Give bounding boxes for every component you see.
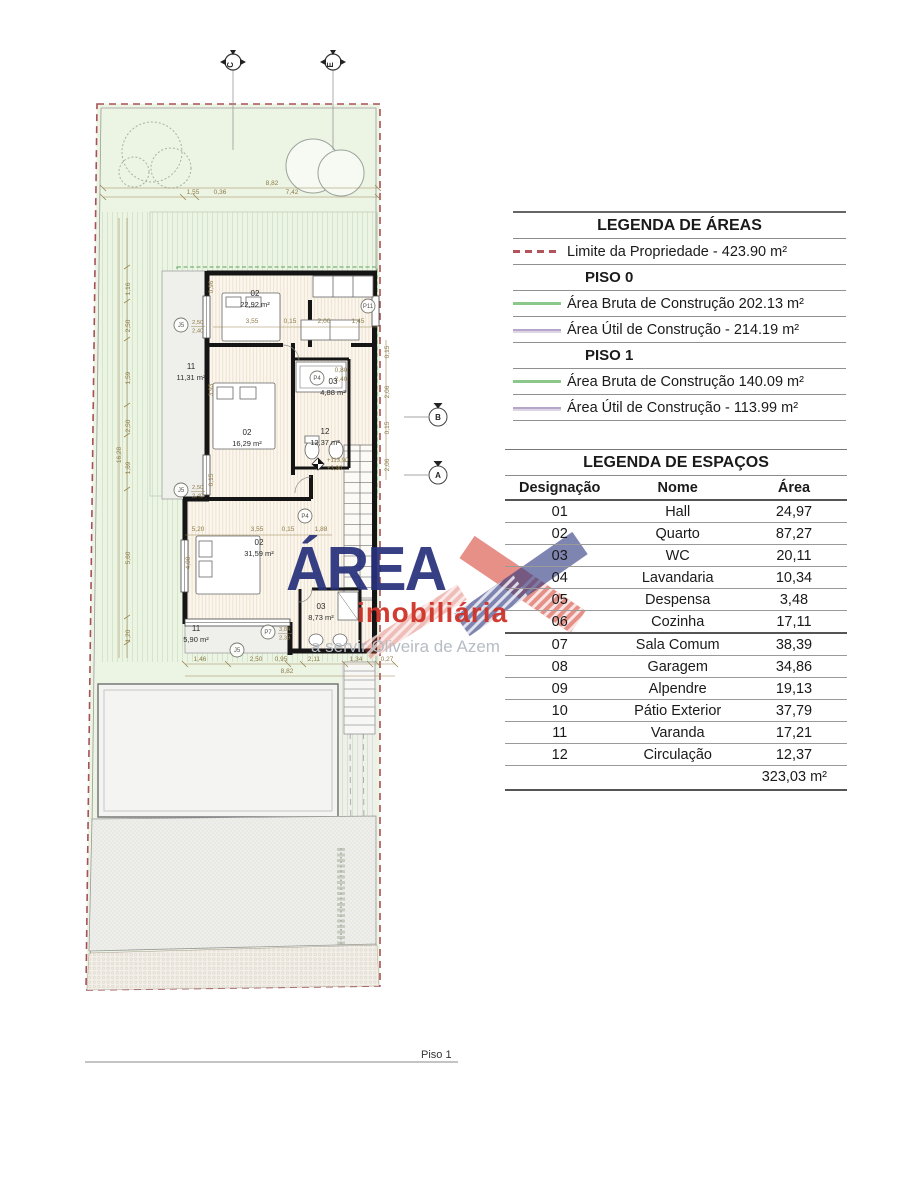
opening-marker-circle	[230, 643, 244, 657]
line-green-line-icon	[513, 302, 567, 305]
column-header-designacao: Designação	[505, 480, 614, 496]
opening-marker-circle	[174, 318, 188, 332]
legend-areas-label: Área Bruta de Construção 202.13 m²	[567, 296, 804, 312]
legend-areas-title: LEGENDA DE ÁREAS	[513, 211, 846, 239]
dim-label: 0,95	[275, 656, 288, 663]
opening-marker-label: P11	[363, 304, 374, 310]
dim-label: 2,50	[125, 319, 132, 332]
legend-spaces-row: 03WC20,11	[505, 545, 847, 567]
space-name: Despensa	[614, 592, 741, 608]
legend-spaces-row: 11Varanda17,21	[505, 722, 847, 744]
space-area: 12,37	[741, 747, 847, 763]
arrow-icon	[230, 50, 236, 55]
arrow-icon	[434, 403, 443, 409]
elevation-marker-circle	[429, 408, 447, 426]
space-code: 07	[505, 637, 614, 653]
space-name: Cozinha	[614, 614, 741, 630]
space-code: 02	[505, 526, 614, 542]
legend-areas-row: Área Bruta de Construção 202.13 m²	[513, 291, 846, 317]
dim-label: 1,59	[125, 371, 132, 384]
legend-areas-table: LEGENDA DE ÁREAS Limite da Propriedade -…	[513, 211, 846, 421]
dim-label: 1,88	[315, 526, 328, 533]
legend-spaces-row: 10Pátio Exterior37,79	[505, 700, 847, 722]
elevation-markers: BA	[404, 403, 447, 484]
legend-areas-label: PISO 0	[567, 269, 633, 286]
level-relative: +3,90	[327, 466, 343, 472]
bed	[213, 383, 275, 449]
toilet	[305, 441, 319, 459]
space-area: 10,34	[741, 570, 847, 586]
space-code: 05	[505, 592, 614, 608]
arrow-icon	[340, 59, 346, 65]
legend-areas-label: Limite da Propriedade - 423.90 m²	[567, 244, 787, 260]
space-area: 19,13	[741, 681, 847, 697]
opening-marker-label: P4	[313, 376, 321, 382]
section-markers: CE	[220, 50, 346, 150]
opening-dim: 2,40	[192, 329, 203, 335]
legend-areas-label: Área Útil de Construção - 214.19 m²	[567, 322, 799, 338]
line-purple-line-icon	[513, 329, 567, 331]
room-number: 02	[243, 428, 252, 437]
brand-tagline: a servir Oliveira de Azem	[311, 637, 500, 657]
space-code: 10	[505, 703, 614, 719]
dim-label: 0,15	[282, 526, 295, 533]
space-name: WC	[614, 548, 741, 564]
opening-marker-circle	[261, 625, 275, 639]
line-purple-line-icon	[513, 407, 567, 409]
dim-label: 16,28	[116, 446, 123, 463]
space-area: 87,27	[741, 526, 847, 542]
dim-label: 1,45	[352, 318, 365, 325]
opening-marker-label: J5	[178, 323, 185, 329]
arrow-icon	[240, 59, 246, 65]
dim-label: 1,16	[125, 282, 132, 295]
legend-areas-label: Área Útil de Construção - 113.99 m²	[567, 400, 798, 416]
space-name: Hall	[614, 504, 741, 520]
legend-spaces-row: 07Sala Comum38,39	[505, 634, 847, 656]
space-area: 38,39	[741, 637, 847, 653]
dim-label: 3,93	[208, 383, 215, 396]
opening-marker-label: J5	[234, 648, 241, 654]
legend-spaces-row: 04Lavandaria10,34	[505, 567, 847, 589]
legend-spaces-header: Designação Nome Área	[505, 476, 847, 501]
line-green-line-icon	[513, 380, 567, 383]
exterior-ground	[87, 662, 379, 990]
opening-dim: 2,39	[279, 636, 290, 642]
space-name: Garagem	[614, 659, 741, 675]
opening-marker-label: P7	[264, 630, 272, 636]
dim-label: 2,40	[335, 376, 348, 383]
column-header-area: Área	[741, 480, 847, 496]
bathtub	[296, 362, 346, 392]
dim-label: 0,15	[208, 473, 215, 486]
opening-dim: 2,40	[192, 494, 203, 500]
legend-spaces-row: 09Alpendre19,13	[505, 678, 847, 700]
floor0-footprint-outline	[177, 267, 377, 497]
dim-label: 0,80	[335, 367, 348, 374]
space-name: Varanda	[614, 725, 741, 741]
dim-label: 0,15	[284, 318, 297, 325]
space-code: 01	[505, 504, 614, 520]
space-code: 03	[505, 548, 614, 564]
arrow-icon	[320, 59, 326, 65]
dim-label: 2,06	[384, 458, 391, 471]
space-area: 3,48	[741, 592, 847, 608]
legend-spaces-row: 08Garagem34,86	[505, 656, 847, 678]
dim-label: 5,60	[125, 551, 132, 564]
opening-marker-circle	[174, 483, 188, 497]
level-value: +113,90	[327, 458, 349, 464]
dim-label: 0,36	[214, 189, 227, 196]
dim-label: 0,15	[384, 345, 391, 358]
dim-label: 3,55	[246, 318, 259, 325]
brand-subtitle: imobiliária	[357, 597, 508, 629]
legend-areas-rows: Limite da Propriedade - 423.90 m²PISO 0Á…	[513, 239, 846, 421]
dim-label: 4,00	[185, 556, 192, 569]
balcony-bottom	[185, 622, 290, 653]
legend-spaces-row: 01Hall24,97	[505, 501, 847, 523]
dim-label: 2,06	[384, 385, 391, 398]
space-name: Quarto	[614, 526, 741, 542]
legend-spaces-row: 02Quarto87,27	[505, 523, 847, 545]
legend-spaces-table: LEGENDA DE ESPAÇOS Designação Nome Área …	[505, 449, 847, 791]
room-number: 11	[192, 624, 201, 633]
legend-spaces-row: 05Despensa3,48	[505, 589, 847, 611]
dim-label: 7,42	[286, 189, 299, 196]
room-area: 12,37 m²	[310, 438, 340, 447]
bed	[196, 536, 260, 594]
elevation-marker-letter: B	[435, 413, 441, 422]
legend-areas-row: PISO 1	[513, 343, 846, 369]
section-marker-circle	[325, 54, 341, 70]
dim-label: 1,46	[194, 656, 207, 663]
space-name: Alpendre	[614, 681, 741, 697]
dim-label: 2,11	[308, 656, 321, 663]
section-marker-letter: C	[226, 62, 235, 68]
room-number: 02	[251, 289, 260, 298]
legend-spaces-title: LEGENDA DE ESPAÇOS	[505, 449, 847, 476]
dim-label: 0,15	[384, 421, 391, 434]
room-area: 8,73 m²	[308, 613, 334, 622]
total-area: 323,03 m²	[505, 766, 847, 791]
dim-label: 8,82	[266, 180, 279, 187]
space-area: 20,11	[741, 548, 847, 564]
space-code: 11	[505, 725, 614, 741]
gravel-strip	[87, 945, 379, 990]
dim-label: 0,96	[208, 280, 215, 293]
legend-areas-label: Área Bruta de Construção 140.09 m²	[567, 374, 804, 390]
opening-dim: 3,84	[279, 627, 291, 633]
legend-areas-label: PISO 1	[567, 347, 633, 364]
space-area: 24,97	[741, 504, 847, 520]
dim-label: 1,20	[125, 629, 132, 642]
tree-icon	[119, 122, 364, 196]
opening-dim: 2,50	[192, 320, 203, 326]
room-number: 12	[321, 427, 330, 436]
room-area: 4,88 m²	[320, 388, 346, 397]
room-area: 22,92 m²	[240, 300, 270, 309]
legend-areas-row: Área Útil de Construção - 113.99 m²	[513, 395, 846, 421]
balcony-left	[162, 271, 207, 499]
legend-spaces-row: 06Cozinha17,11	[505, 611, 847, 634]
room-area: 11,31 m²	[176, 373, 206, 382]
space-code: 04	[505, 570, 614, 586]
dim-label: 2,50	[250, 656, 263, 663]
exterior-stairs	[344, 662, 375, 734]
lawn-texture	[89, 816, 376, 951]
space-name: Circulação	[614, 747, 741, 763]
space-name: Lavandaria	[614, 570, 741, 586]
drawing-sheet: { "page": { "floor_label": "Piso 1" }, "…	[0, 0, 900, 1182]
column-header-nome: Nome	[614, 480, 741, 496]
dim-label: 8,82	[281, 668, 294, 675]
space-area: 37,79	[741, 703, 847, 719]
room-number: 02	[255, 538, 264, 547]
dim-label: 1,34	[350, 656, 363, 663]
opening-dim: 2,50	[192, 485, 203, 491]
arrow-icon	[220, 59, 226, 65]
opening-marker-circle	[361, 299, 375, 313]
dim-label: 1,55	[187, 189, 200, 196]
dashed-red-line-icon	[513, 250, 567, 253]
bidet	[329, 441, 343, 459]
space-area: 17,21	[741, 725, 847, 741]
dim-label: 1,69	[125, 461, 132, 474]
terrace-outline	[150, 212, 377, 496]
closet	[313, 276, 373, 297]
section-marker-letter: E	[326, 61, 335, 67]
room-area: 5,90 m²	[183, 635, 209, 644]
dim-label: 3,55	[251, 526, 264, 533]
floor-label: Piso 1	[421, 1049, 452, 1061]
dim-label: 5,20	[192, 526, 205, 533]
space-code: 08	[505, 659, 614, 675]
sheet-label: Piso 1	[85, 1049, 458, 1062]
legend-areas-row: PISO 0	[513, 265, 846, 291]
opening-marker-label: P4	[301, 514, 309, 520]
brand-name: ÁREA	[286, 534, 445, 606]
level-marker: +113,90 +3,90	[312, 458, 349, 472]
room-number: 03	[329, 377, 338, 386]
space-area: 34,86	[741, 659, 847, 675]
opening-marker-label: J5	[178, 488, 185, 494]
legend-areas-row: Limite da Propriedade - 423.90 m²	[513, 239, 846, 265]
dim-label: 0,27	[381, 656, 394, 663]
space-name: Pátio Exterior	[614, 703, 741, 719]
opening-marker-circle	[298, 509, 312, 523]
space-code: 06	[505, 614, 614, 630]
legend-areas-row: Área Útil de Construção - 214.19 m²	[513, 317, 846, 343]
space-area: 17,11	[741, 614, 847, 630]
arrow-icon	[434, 461, 443, 467]
legend-spaces-row: 12Circulação12,37	[505, 744, 847, 766]
room-area: 31,59 m²	[244, 549, 274, 558]
section-marker-circle	[225, 54, 241, 70]
legend-spaces-rows: 01Hall24,9702Quarto87,2703WC20,1104Lavan…	[505, 501, 847, 766]
space-name: Sala Comum	[614, 637, 741, 653]
dim-label: 2,50	[125, 419, 132, 432]
dim-label: 2,00	[318, 318, 331, 325]
bed	[222, 293, 280, 341]
legend-areas-row: Área Bruta de Construção 140.09 m²	[513, 369, 846, 395]
space-code: 09	[505, 681, 614, 697]
space-code: 12	[505, 747, 614, 763]
patio-slab	[98, 684, 338, 817]
opening-marker-circle	[310, 371, 324, 385]
room-number: 11	[187, 362, 196, 371]
room-area: 16,29 m²	[232, 439, 262, 448]
arrow-icon	[330, 50, 336, 55]
elevation-marker-circle	[429, 466, 447, 484]
elevation-marker-letter: A	[435, 471, 441, 480]
